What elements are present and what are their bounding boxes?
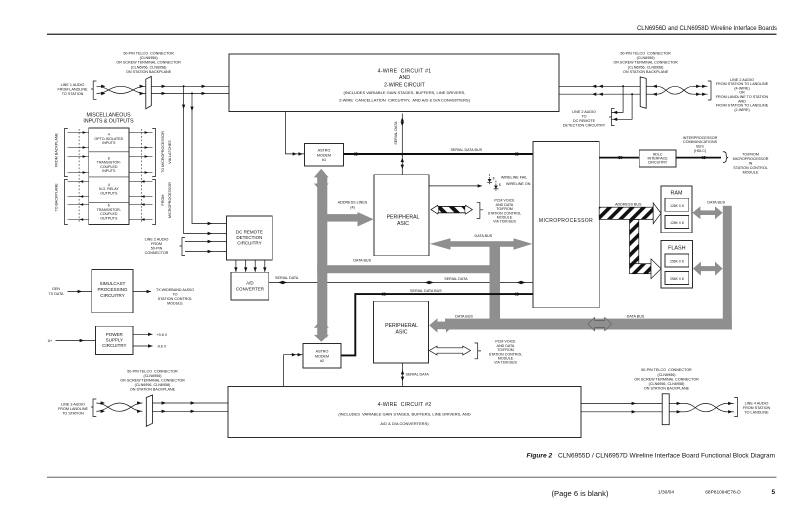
svg-text:CONVERTER: CONVERTER [236,287,265,292]
svg-text:OR SCREW TERMINAL CONNECTOR: OR SCREW TERMINAL CONNECTOR [120,379,185,383]
svg-text:FROM LANDLINE: FROM LANDLINE [58,407,88,411]
svg-text:(CLN6956): (CLN6956) [140,56,158,60]
svg-text:OR SCREW TERMINAL CONNECTOR: OR SCREW TERMINAL CONNECTOR [613,61,678,65]
svg-text:MICROPROCESSOR: MICROPROCESSOR [733,157,769,161]
svg-text:5: 5 [771,489,775,496]
svg-text:VIA LATCHES: VIA LATCHES [168,140,172,164]
svg-text:(4): (4) [350,205,355,209]
svg-text:ASIC: ASIC [397,221,409,227]
svg-text:(HDLC): (HDLC) [694,149,707,153]
svg-text:MODULE: MODULE [743,171,759,175]
svg-text:SERIAL DATA: SERIAL DATA [275,276,299,280]
svg-text:(Page 6 is blank): (Page 6 is blank) [552,489,609,498]
svg-text:TO BACKPLANE: TO BACKPLANE [55,183,59,212]
svg-text:256K X 8: 256K X 8 [670,260,684,264]
svg-text:50-PIN TELCO CONNECTOR: 50-PIN TELCO CONNECTOR [641,368,692,372]
svg-text:FROM: FROM [161,195,165,206]
svg-text:DATA BUS: DATA BUS [475,234,493,238]
svg-text:LINE 4 AUDIO: LINE 4 AUDIO [745,402,769,406]
svg-text:FROM STATION: FROM STATION [743,406,771,410]
svg-text:TO MICROPROCESSOR: TO MICROPROCESSOR [161,131,165,173]
svg-text:50-PIN TELCO CONNECTOR: 50-PIN TELCO CONNECTOR [123,52,174,56]
svg-text:256K X 8: 256K X 8 [670,277,684,281]
svg-text:AND: AND [399,75,410,81]
svg-text:RAM: RAM [671,190,683,196]
svg-text:MODEM: MODEM [317,153,331,157]
svg-text:(2-WIRE): (2-WIRE) [734,108,749,112]
svg-text:DETECTION: DETECTION [236,235,262,240]
svg-text:2-WIRE CANCELLATION CIRCUITR: 2-WIRE CANCELLATION CIRCUITRY, AND A/D &… [339,97,471,102]
svg-text:ON STATION BACKPLANE: ON STATION BACKPLANE [130,388,176,392]
svg-text:CLN6956D and CLN6958D Wireline: CLN6956D and CLN6958D Wireline Interface… [637,25,778,32]
svg-text:68P81094E78-D: 68P81094E78-D [705,490,741,496]
svg-text:TO/FROM: TO/FROM [742,153,759,157]
svg-text:DATA BUS: DATA BUS [353,258,371,262]
svg-text:PROCESSING: PROCESSING [97,287,128,292]
svg-text:ADDRESS BUS: ADDRESS BUS [615,203,642,207]
svg-text:MICROPROCESSOR: MICROPROCESSOR [539,218,593,224]
svg-text:VIA TDM BUS: VIA TDM BUS [493,220,516,224]
svg-text:STATION CONTROL: STATION CONTROL [733,166,767,170]
svg-text:SUPPLY: SUPPLY [106,337,123,342]
svg-text:SERIAL DATA: SERIAL DATA [394,121,398,145]
svg-text:INPUTS: INPUTS [102,169,116,173]
svg-text:DATA BUS: DATA BUS [627,315,645,319]
svg-text:50-PIN TELCO CONNECTOR: 50-PIN TELCO CONNECTOR [127,369,178,373]
svg-text:A/D & D/A CONVERTERS): A/D & D/A CONVERTERS) [380,421,429,426]
svg-text:50-PIN TELCO CONNECTOR: 50-PIN TELCO CONNECTOR [620,52,671,56]
svg-text:FROM: FROM [151,242,162,246]
svg-text:CIRCUITRY: CIRCUITRY [100,293,124,298]
svg-text:DC REMOTE: DC REMOTE [573,119,596,123]
svg-text:TO: TO [172,293,177,297]
svg-text:ASTRO: ASTRO [316,350,329,354]
svg-text:PERIPHERAL: PERIPHERAL [387,215,420,221]
svg-text:VIA TDM BUS: VIA TDM BUS [494,361,517,365]
svg-text:(CLN6956): (CLN6956) [637,56,655,60]
svg-text:(CLN6956, CLN6958): (CLN6956, CLN6958) [131,65,167,69]
svg-text:TO STATION: TO STATION [62,92,84,96]
svg-text:LINE 1 AUDIO: LINE 1 AUDIO [61,83,85,87]
svg-text:A+: A+ [48,339,53,343]
svg-text:SERIAL DATA: SERIAL DATA [406,373,430,377]
svg-text:ON STATION BACKPLANE: ON STATION BACKPLANE [644,387,690,391]
svg-text:MODEM: MODEM [315,354,329,358]
svg-text:(CLN6956, CLN6958): (CLN6956, CLN6958) [135,383,171,387]
svg-text:LINE 2 AUDIO: LINE 2 AUDIO [145,238,169,242]
svg-text:$: $ [493,176,495,180]
svg-text:WIRELINE ON: WIRELINE ON [506,182,531,186]
svg-text:128K X 8: 128K X 8 [670,204,684,208]
svg-text:CIRCUITRY: CIRCUITRY [648,161,668,165]
svg-text:4-WIRE CIRCUIT #2: 4-WIRE CIRCUIT #2 [378,402,432,408]
svg-text:(CLN6956, CLN6958): (CLN6956, CLN6958) [649,382,685,386]
svg-text:(INCLUDES VARIABLE GAIN STAGE: (INCLUDES VARIABLE GAIN STAGES, BUFFERS,… [338,412,470,417]
svg-text:-9.6 V: -9.6 V [157,345,167,349]
svg-text:4-WIRE CIRCUIT #1: 4-WIRE CIRCUIT #1 [378,69,432,75]
svg-text:CLN6955D / CLN6957D Wireline I: CLN6955D / CLN6957D Wireline Interface B… [558,453,775,460]
svg-text:POWER: POWER [106,332,124,337]
svg-text:OR SCREW TERMINAL CONNECTOR: OR SCREW TERMINAL CONNECTOR [634,377,699,381]
svg-text:DATA BUS: DATA BUS [455,314,473,318]
svg-text:INPUTS & OUTPUTS: INPUTS & OUTPUTS [83,118,134,124]
svg-text:ON STATION BACKPLANE: ON STATION BACKPLANE [126,70,172,74]
svg-text:PERIPHERAL: PERIPHERAL [385,323,418,329]
svg-text:DC REMOTE: DC REMOTE [236,230,263,235]
svg-text:DATA BUS: DATA BUS [707,201,725,205]
svg-text:TO: TO [581,115,586,119]
svg-text:TX DATA: TX DATA [48,292,64,296]
svg-text:TO LANDLINE: TO LANDLINE [744,411,769,415]
svg-text:(CLN6956, CLN6958): (CLN6956, CLN6958) [628,65,664,69]
svg-text:SIMULCAST: SIMULCAST [100,281,126,286]
svg-text:#2: #2 [320,359,324,363]
svg-text:TX WIDEBAND AUDIO: TX WIDEBAND AUDIO [156,288,194,292]
svg-text:ASTRO: ASTRO [318,149,331,153]
svg-text:GEN: GEN [52,287,60,291]
svg-text:INPUTS: INPUTS [102,141,116,145]
svg-text:(CLN6956): (CLN6956) [143,374,161,378]
svg-text:CIRCUITRY: CIRCUITRY [237,241,261,246]
svg-text:WIRELINE FAIL: WIRELINE FAIL [501,175,527,179]
svg-text:DETECTION CIRCUITRY: DETECTION CIRCUITRY [563,124,606,128]
svg-text:#1: #1 [322,158,326,162]
svg-text:ASIC: ASIC [395,329,407,335]
svg-text:1/30/04: 1/30/04 [658,490,674,496]
svg-text:CIRCUITRY: CIRCUITRY [102,343,126,348]
svg-text:SERIAL DATA BUS: SERIAL DATA BUS [410,289,442,293]
svg-text:STATION CONTROL: STATION CONTROL [158,297,192,301]
svg-text:(INCLUDES VARIABLE GAIN STAGES: (INCLUDES VARIABLE GAIN STAGES, BUFFERS,… [344,90,466,95]
svg-text:SERIAL DATA BUS: SERIAL DATA BUS [450,148,482,152]
svg-text:LINE 3 AUDIO: LINE 3 AUDIO [61,403,85,407]
svg-text:TO STATION: TO STATION [62,412,84,416]
svg-text:FLASH: FLASH [668,245,685,251]
svg-text:FROM BACKPLANE: FROM BACKPLANE [55,132,59,167]
svg-text:LINE 2 AUDIO: LINE 2 AUDIO [572,110,596,114]
svg-text:FROM LANDLINE: FROM LANDLINE [58,87,88,91]
svg-text:A/D: A/D [246,281,254,286]
svg-text:OR SCREW TERMINAL CONNECTOR: OR SCREW TERMINAL CONNECTOR [116,61,181,65]
svg-text:(CLN6956): (CLN6956) [657,373,675,377]
svg-text:Figure 2: Figure 2 [527,453,553,460]
svg-text:MICROPROCESSOR: MICROPROCESSOR [168,182,172,218]
svg-text:IN: IN [749,162,753,166]
svg-text:$: $ [499,183,501,187]
svg-text:SERIAL DATA: SERIAL DATA [444,277,468,281]
svg-text:+9.6 V: +9.6 V [157,333,168,337]
svg-text:OUTPUTS: OUTPUTS [100,216,118,220]
svg-text:2-WIRE CIRCUIT: 2-WIRE CIRCUIT [384,82,425,88]
svg-text:CONNECTOR: CONNECTOR [145,251,169,255]
svg-text:MODULE: MODULE [167,302,183,306]
svg-text:ADDRESS LINES: ADDRESS LINES [338,201,368,205]
svg-text:OUTPUTS: OUTPUTS [100,191,118,195]
svg-text:128K X 8: 128K X 8 [670,221,684,225]
svg-text:50-PIN: 50-PIN [151,247,163,251]
svg-text:ON STATION BACKPLANE: ON STATION BACKPLANE [623,70,669,74]
